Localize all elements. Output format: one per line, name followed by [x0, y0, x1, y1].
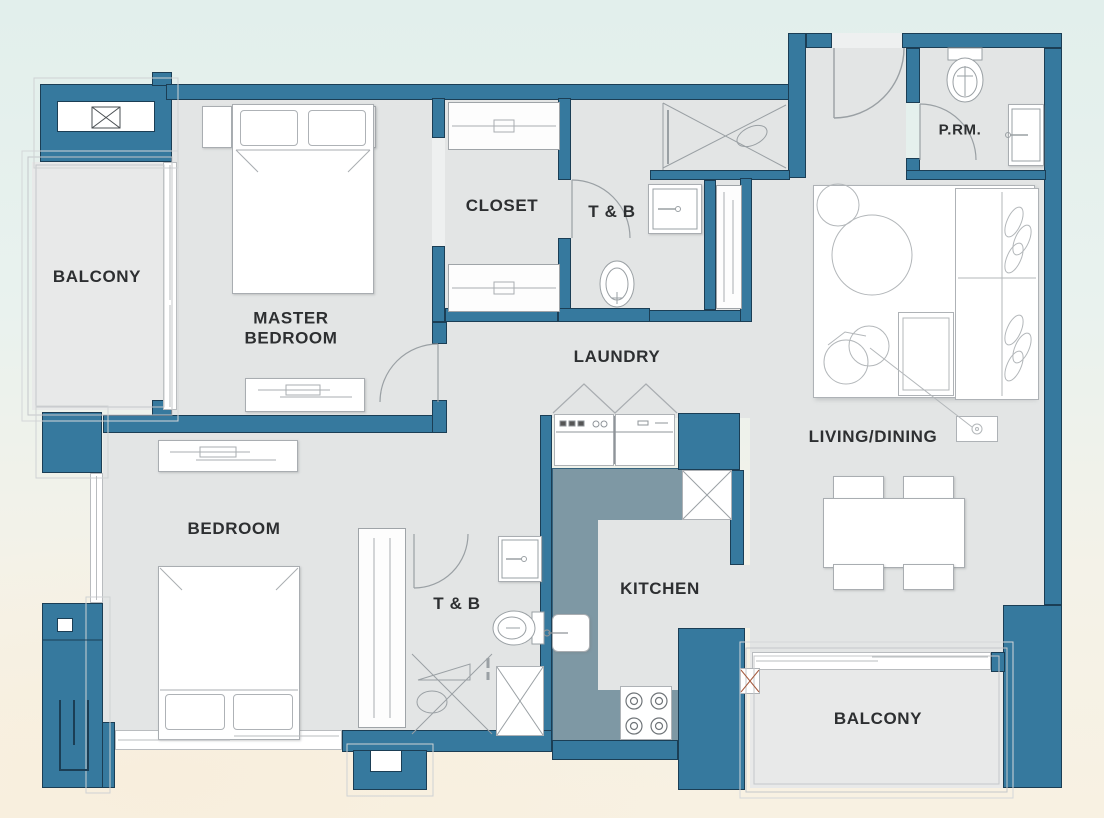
kitchen-sink: [552, 614, 590, 652]
wall-nook-bottom: [640, 310, 750, 322]
wall-kitchen-corner-block: [678, 628, 745, 790]
wall-entry-left: [788, 33, 806, 178]
wall-shower-bottom: [650, 170, 790, 180]
tv-console: [956, 416, 998, 442]
wall-closet-left-b: [432, 246, 445, 322]
master-nightstand-left: [202, 106, 232, 148]
bedroom-pillow-right: [233, 694, 293, 730]
stove: [620, 686, 672, 740]
balcony-main-label: BALCONY: [834, 709, 922, 729]
foyer-floor: [806, 48, 906, 178]
closet-opening: [432, 138, 445, 246]
balcony-left-label: BALCONY: [53, 267, 141, 287]
laundry-floor: [440, 322, 750, 418]
shaft: [496, 666, 544, 736]
bedroom-left-window: [90, 473, 103, 603]
kitchen-label: KITCHEN: [620, 579, 700, 599]
wall-master-door-b: [432, 400, 447, 433]
wall-right-bottom-block: [1003, 605, 1062, 788]
wall-master-bottom: [103, 415, 433, 433]
kitchen-entry-floor: [730, 565, 752, 628]
bedroom-pillow-left: [165, 694, 225, 730]
floor-plan: BALCONY MASTER BEDROOM CLOSET T & B LAUN…: [0, 0, 1104, 818]
armchair: [898, 312, 954, 396]
laundry-label: LAUNDRY: [574, 347, 661, 367]
wall-top-right-b: [902, 33, 1062, 48]
wall-closet-left-a: [432, 98, 445, 138]
wall-balcony-tab: [991, 652, 1005, 672]
closet-cabinet-top: [448, 102, 560, 150]
wall-master-door-a: [432, 322, 447, 344]
master-bath-label: T & B: [588, 202, 635, 222]
dryer: [615, 414, 675, 466]
master-bath-sink: [648, 184, 702, 234]
living-dining-label: LIVING/DINING: [809, 427, 938, 447]
left-fin-window: [57, 618, 73, 632]
wall-bath-bottom: [558, 308, 650, 322]
planter-ledge-notch: [370, 750, 402, 772]
shower-floor: [640, 98, 790, 180]
dining-table: [823, 498, 965, 568]
master-bedroom-label: MASTER BEDROOM: [226, 308, 356, 347]
wall-prm-left-a: [906, 48, 920, 103]
fridge: [682, 470, 732, 520]
bedroom-dresser: [158, 440, 298, 472]
closet-cabinet-bottom: [448, 264, 560, 312]
sofa: [955, 188, 1039, 400]
bedroom-label: BEDROOM: [188, 519, 281, 539]
wall-under-prm: [906, 170, 1046, 180]
living-balcony-window: [752, 652, 991, 670]
master-dresser: [245, 378, 365, 412]
master-pillow-left: [240, 110, 298, 146]
hall-cabinet: [716, 185, 742, 309]
washer: [554, 414, 614, 466]
wall-right: [1044, 48, 1062, 605]
service-box: [740, 668, 760, 694]
dining-chair-3: [833, 564, 884, 590]
hall-floor: [443, 418, 545, 523]
wall-nook-divider: [704, 180, 716, 310]
wall-bottom-kitchen: [552, 740, 678, 760]
powder-room-label: P.RM.: [939, 122, 982, 139]
common-bath-label: T & B: [433, 594, 480, 614]
dining-chair-4: [903, 564, 954, 590]
wall-kitchen-right: [730, 470, 744, 565]
left-ac-ledge: [42, 412, 102, 473]
closet-label: CLOSET: [466, 196, 539, 216]
common-bath-sink: [498, 536, 542, 582]
powder-sink: [1008, 104, 1044, 166]
wall-top: [166, 84, 798, 100]
master-balcony-window: [163, 162, 177, 410]
bedroom-wardrobe: [358, 528, 406, 728]
wall-kitchen-top-right: [678, 413, 740, 470]
ac-ledge-inner: [57, 101, 155, 132]
wall-top-right-a: [806, 33, 832, 48]
master-pillow-right: [308, 110, 366, 146]
entry-door-opening: [832, 33, 902, 48]
